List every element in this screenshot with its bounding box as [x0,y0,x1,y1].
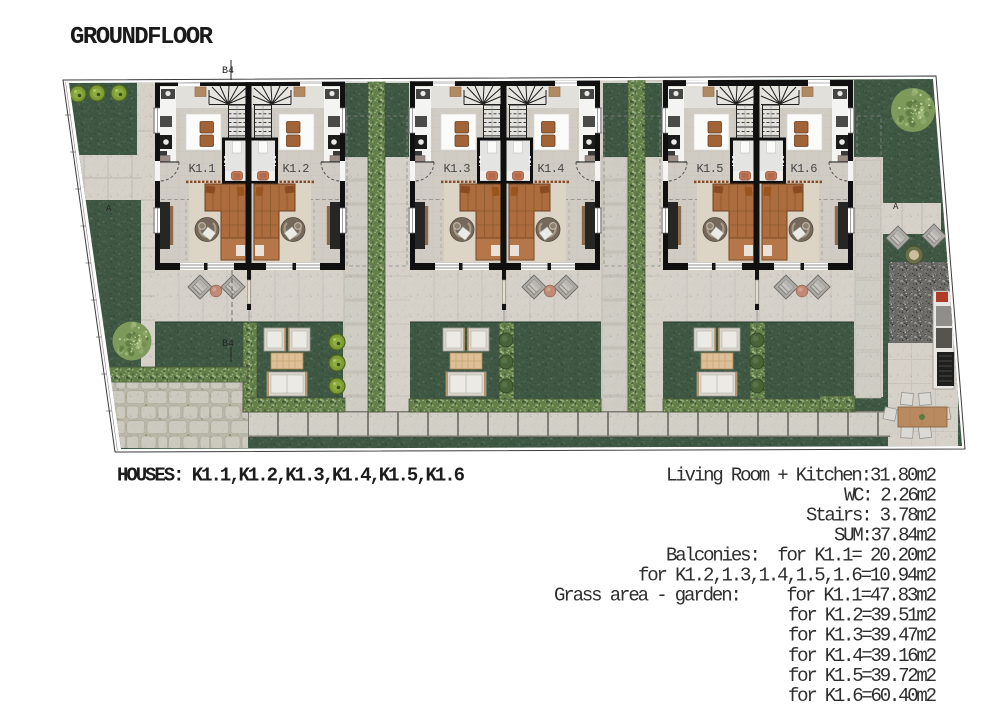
svg-text:K1.4: K1.4 [538,162,565,176]
svg-text:HOUSES: K1.1,K1.2,K1.3,K1.4,K1: HOUSES: K1.1,K1.2,K1.3,K1.4,K1.5,K1.6 [117,465,465,487]
svg-text:Grass area - garden: for K: Grass area - garden: for K1.1=47.83m2 [554,585,937,607]
svg-text:Stairs: 3.78m2: Stairs: 3.78m2 [806,505,937,527]
svg-text:for K1.3=39.47m2: for K1.3=39.47m2 [788,625,937,647]
svg-text:K1.6: K1.6 [791,162,818,176]
svg-text:B4: B4 [222,339,234,350]
svg-text:Living Room + Kitchen:31.80m2: Living Room + Kitchen:31.80m2 [666,465,937,487]
svg-text:A: A [106,204,112,214]
svg-text:for K1.4=39.16m2: for K1.4=39.16m2 [788,645,937,667]
svg-text:K1.3: K1.3 [444,162,471,176]
svg-text:for K1.5=39.72m2: for K1.5=39.72m2 [788,665,937,687]
svg-text:WC: 2.26m2: WC: 2.26m2 [844,485,937,507]
svg-text:Balconies: for K1.1= 20.20m2: Balconies: for K1.1= 20.20m2 [666,545,937,567]
svg-text:B4: B4 [222,66,234,77]
svg-text:for K1.2,1.3,1.4,1.5,1.6=10.94: for K1.2,1.3,1.4,1.5,1.6=10.94m2 [638,565,937,587]
svg-text:K1.5: K1.5 [697,162,724,176]
svg-text:for K1.6=60.40m2: for K1.6=60.40m2 [788,685,937,707]
svg-text:GROUNDFLOOR: GROUNDFLOOR [70,24,214,51]
svg-text:A: A [893,202,899,212]
svg-text:K1.2: K1.2 [283,162,310,176]
svg-text:K1.1: K1.1 [189,162,216,176]
svg-text:for K1.2=39.51m2: for K1.2=39.51m2 [788,605,937,627]
svg-text:SUM:37.84m2: SUM:37.84m2 [834,525,937,547]
